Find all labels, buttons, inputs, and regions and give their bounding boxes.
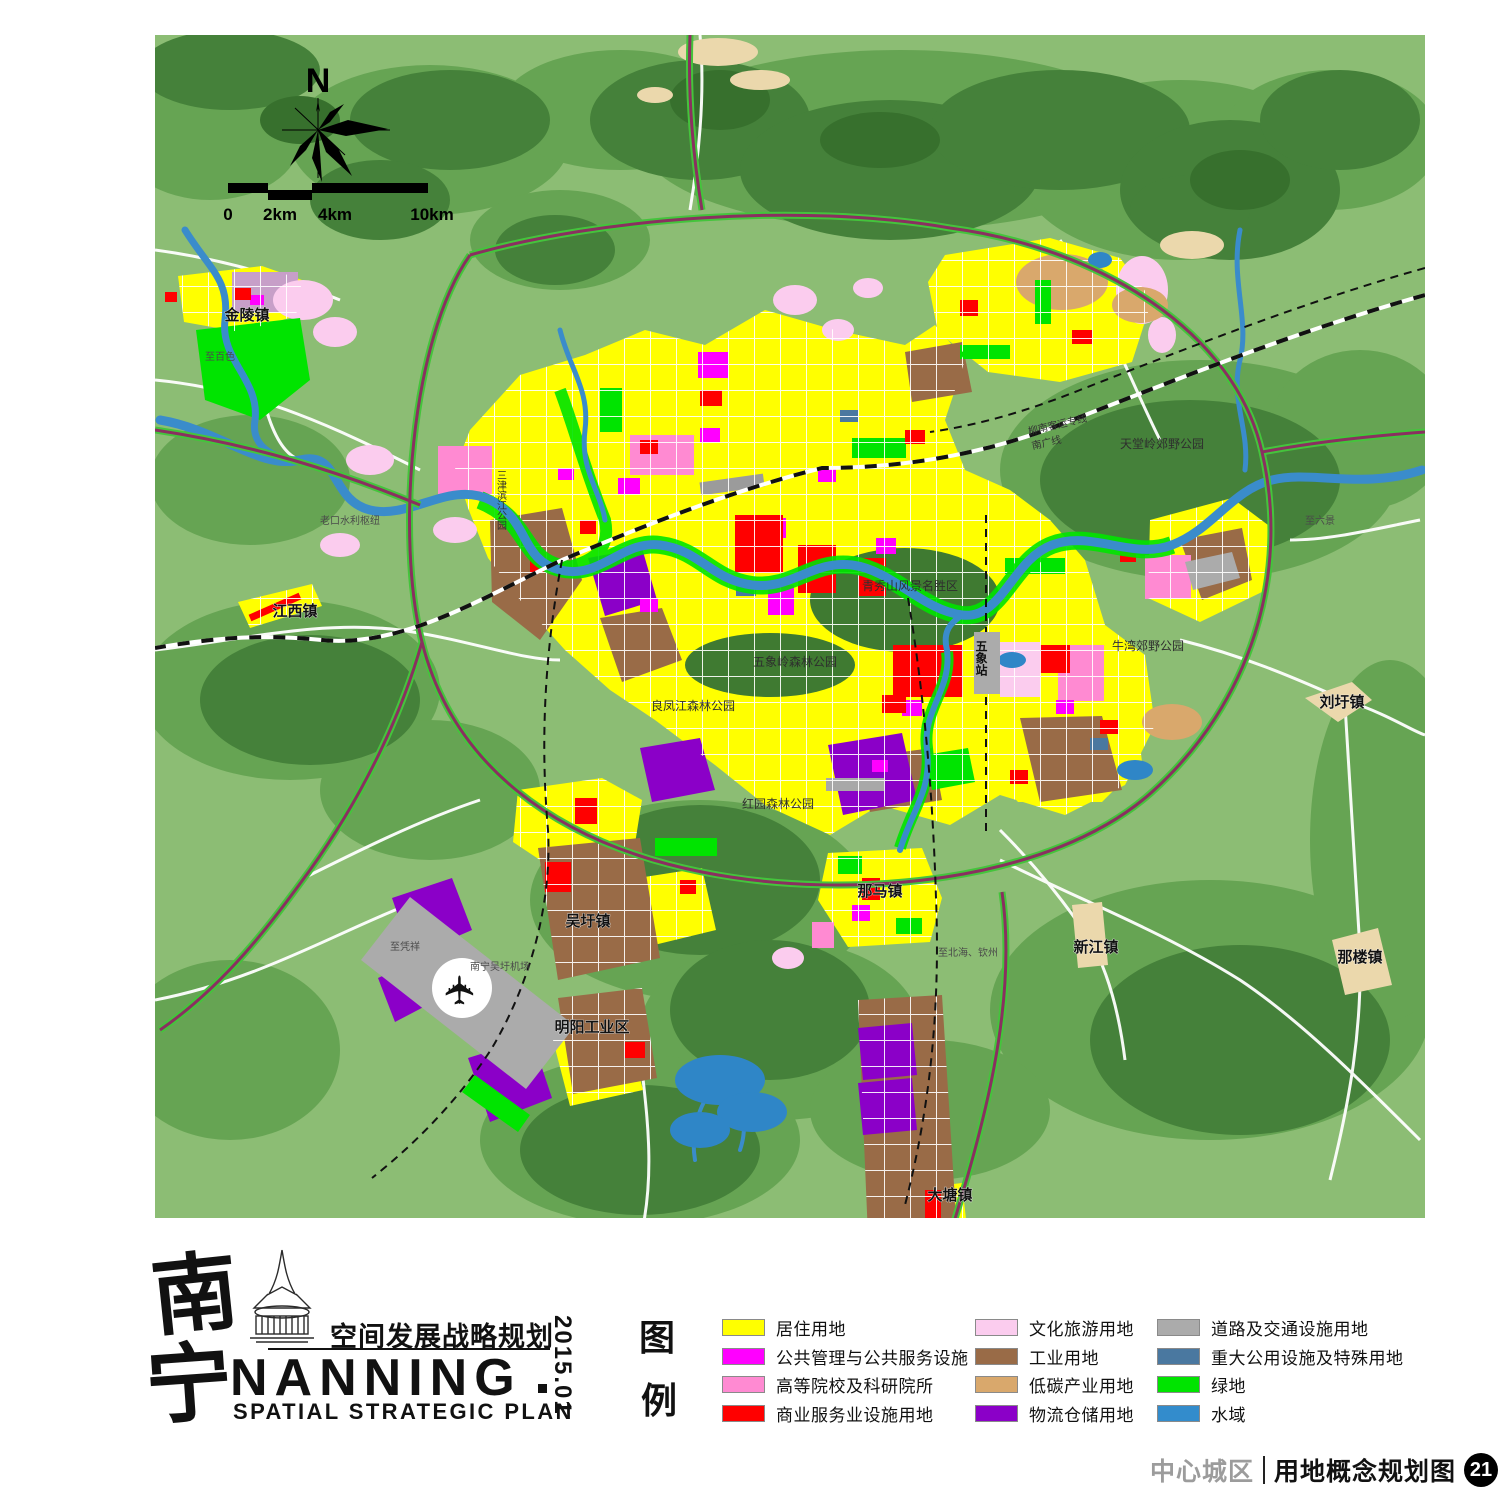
map-label-niuwan-park: 牛湾郊野公园 bbox=[1112, 638, 1184, 653]
legend-label: 绿地 bbox=[1211, 1372, 1246, 1397]
legend-label: 文化旅游用地 bbox=[1029, 1315, 1134, 1340]
logo-dot bbox=[538, 1384, 547, 1393]
legend-swatch bbox=[722, 1376, 765, 1393]
legend-label: 道路及交通设施用地 bbox=[1211, 1315, 1369, 1340]
map-label-to-baise: 至百色 bbox=[205, 350, 235, 363]
legend-item: 高等院校及科研院所 bbox=[722, 1377, 969, 1392]
legend-label: 水域 bbox=[1211, 1401, 1246, 1426]
legend-item: 低碳产业用地 bbox=[975, 1377, 1134, 1392]
legend-swatch bbox=[975, 1376, 1018, 1393]
legend-swatch bbox=[975, 1405, 1018, 1422]
legend-swatch bbox=[1157, 1348, 1200, 1365]
legend-label: 工业用地 bbox=[1029, 1344, 1099, 1369]
map-label-to-beihai: 至北海、钦州 bbox=[938, 946, 998, 959]
logo-calligraphy-char1: 南 bbox=[148, 1248, 243, 1343]
map-label-nama-town: 那马镇 bbox=[857, 882, 902, 900]
footer-map-title: 用地概念规划图 bbox=[1274, 1452, 1456, 1488]
legend-label: 商业服务业设施用地 bbox=[776, 1401, 934, 1426]
legend-column-2: 文化旅游用地 工业用地 低碳产业用地 物流仓储用地 bbox=[975, 1320, 1134, 1434]
legend-item: 工业用地 bbox=[975, 1349, 1134, 1364]
map-label-hongyuan-park: 红园森林公园 bbox=[742, 796, 814, 811]
legend-swatch bbox=[722, 1319, 765, 1336]
legend-label: 低碳产业用地 bbox=[1029, 1372, 1134, 1397]
legend-item: 商业服务业设施用地 bbox=[722, 1406, 969, 1421]
legend-label: 公共管理与公共服务设施 bbox=[776, 1344, 969, 1369]
map-label-airport-name: 南宁吴圩机场 bbox=[470, 960, 530, 973]
scale-tick-4km: 4km bbox=[318, 205, 352, 224]
map-label-qingxiushan: 青秀山风景名胜区 bbox=[862, 578, 958, 593]
legend-label: 高等院校及科研院所 bbox=[776, 1372, 934, 1397]
legend-title-char1: 图 bbox=[637, 1320, 677, 1356]
logo-en-subtitle: SPATIAL STRATEGIC PLAN bbox=[233, 1399, 574, 1425]
scale-tick-10km: 10km bbox=[410, 205, 453, 224]
logo-calligraphy-char2: 宁 bbox=[143, 1339, 235, 1431]
legend-swatch bbox=[1157, 1405, 1200, 1422]
footer-district: 中心城区 bbox=[1150, 1452, 1254, 1488]
map-label-liuwei-town: 刘圩镇 bbox=[1319, 693, 1364, 711]
page-number-badge: 21 bbox=[1464, 1453, 1498, 1487]
scale-tick-0: 0 bbox=[223, 205, 232, 224]
legend-label: 物流仓储用地 bbox=[1029, 1401, 1134, 1426]
map-label-tiantangling-park: 天堂岭郊野公园 bbox=[1120, 437, 1204, 451]
legend-column-3: 道路及交通设施用地 重大公用设施及特殊用地 绿地 水域 bbox=[1157, 1320, 1404, 1434]
legend-item: 公共管理与公共服务设施 bbox=[722, 1349, 969, 1364]
legend-swatch bbox=[975, 1348, 1018, 1365]
legend-swatch bbox=[1157, 1376, 1200, 1393]
legend-swatch bbox=[722, 1348, 765, 1365]
map-label-jiangxi-town: 江西镇 bbox=[272, 602, 317, 620]
legend-label: 居住用地 bbox=[776, 1315, 846, 1340]
logo-date: 2015.01 bbox=[548, 1315, 576, 1425]
legend-swatch bbox=[975, 1319, 1018, 1336]
footer-divider bbox=[1263, 1456, 1265, 1484]
legend-item: 居住用地 bbox=[722, 1320, 969, 1335]
legend-label: 重大公用设施及特殊用地 bbox=[1211, 1344, 1404, 1369]
airplane-icon: ✈ bbox=[439, 973, 483, 1007]
scale-tick-2km: 2km bbox=[263, 205, 297, 224]
map-label-wuxiangling-park: 五象岭森林公园 bbox=[753, 654, 837, 669]
map-label-to-liujing: 至六景 bbox=[1305, 515, 1335, 527]
map-label-sanjin-park: 三津滨江公园 bbox=[495, 470, 507, 531]
planning-map: ✈ bbox=[155, 35, 1425, 1218]
legend-item: 物流仓储用地 bbox=[975, 1406, 1134, 1421]
legend-column-1: 居住用地 公共管理与公共服务设施 高等院校及科研院所 商业服务业设施用地 bbox=[722, 1320, 969, 1434]
map-label-wuxiang-station: 五象站 bbox=[974, 640, 988, 677]
map-label-datang-town: 大塘镇 bbox=[927, 1186, 972, 1204]
legend-item: 文化旅游用地 bbox=[975, 1320, 1134, 1335]
map-label-to-pingxiang: 至凭祥 bbox=[390, 940, 420, 953]
map-label-jinling-town: 金陵镇 bbox=[223, 306, 269, 324]
legend-swatch bbox=[1157, 1319, 1200, 1336]
map-label-xinjiang-town: 新江镇 bbox=[1073, 938, 1118, 956]
map-label-laokou-hub: 老口水利枢纽 bbox=[320, 514, 380, 527]
north-label: N bbox=[306, 62, 331, 100]
legend-item: 水域 bbox=[1157, 1406, 1404, 1421]
map-label-wuwei-town: 吴圩镇 bbox=[565, 912, 610, 930]
map-label-mingyang-zone: 明阳工业区 bbox=[554, 1019, 629, 1036]
legend-item: 绿地 bbox=[1157, 1377, 1404, 1392]
legend-title-char2: 例 bbox=[639, 1383, 679, 1419]
tower-illustration bbox=[232, 1248, 332, 1346]
legend-item: 重大公用设施及特殊用地 bbox=[1157, 1349, 1404, 1364]
legend-item: 道路及交通设施用地 bbox=[1157, 1320, 1404, 1335]
legend-swatch bbox=[722, 1405, 765, 1422]
footer: 中心城区 用地概念规划图 21 bbox=[1150, 1450, 1500, 1490]
map-label-liangfengjiang-park: 良凤江森林公园 bbox=[651, 698, 735, 713]
map-label-nalou-town: 那楼镇 bbox=[1337, 948, 1382, 966]
